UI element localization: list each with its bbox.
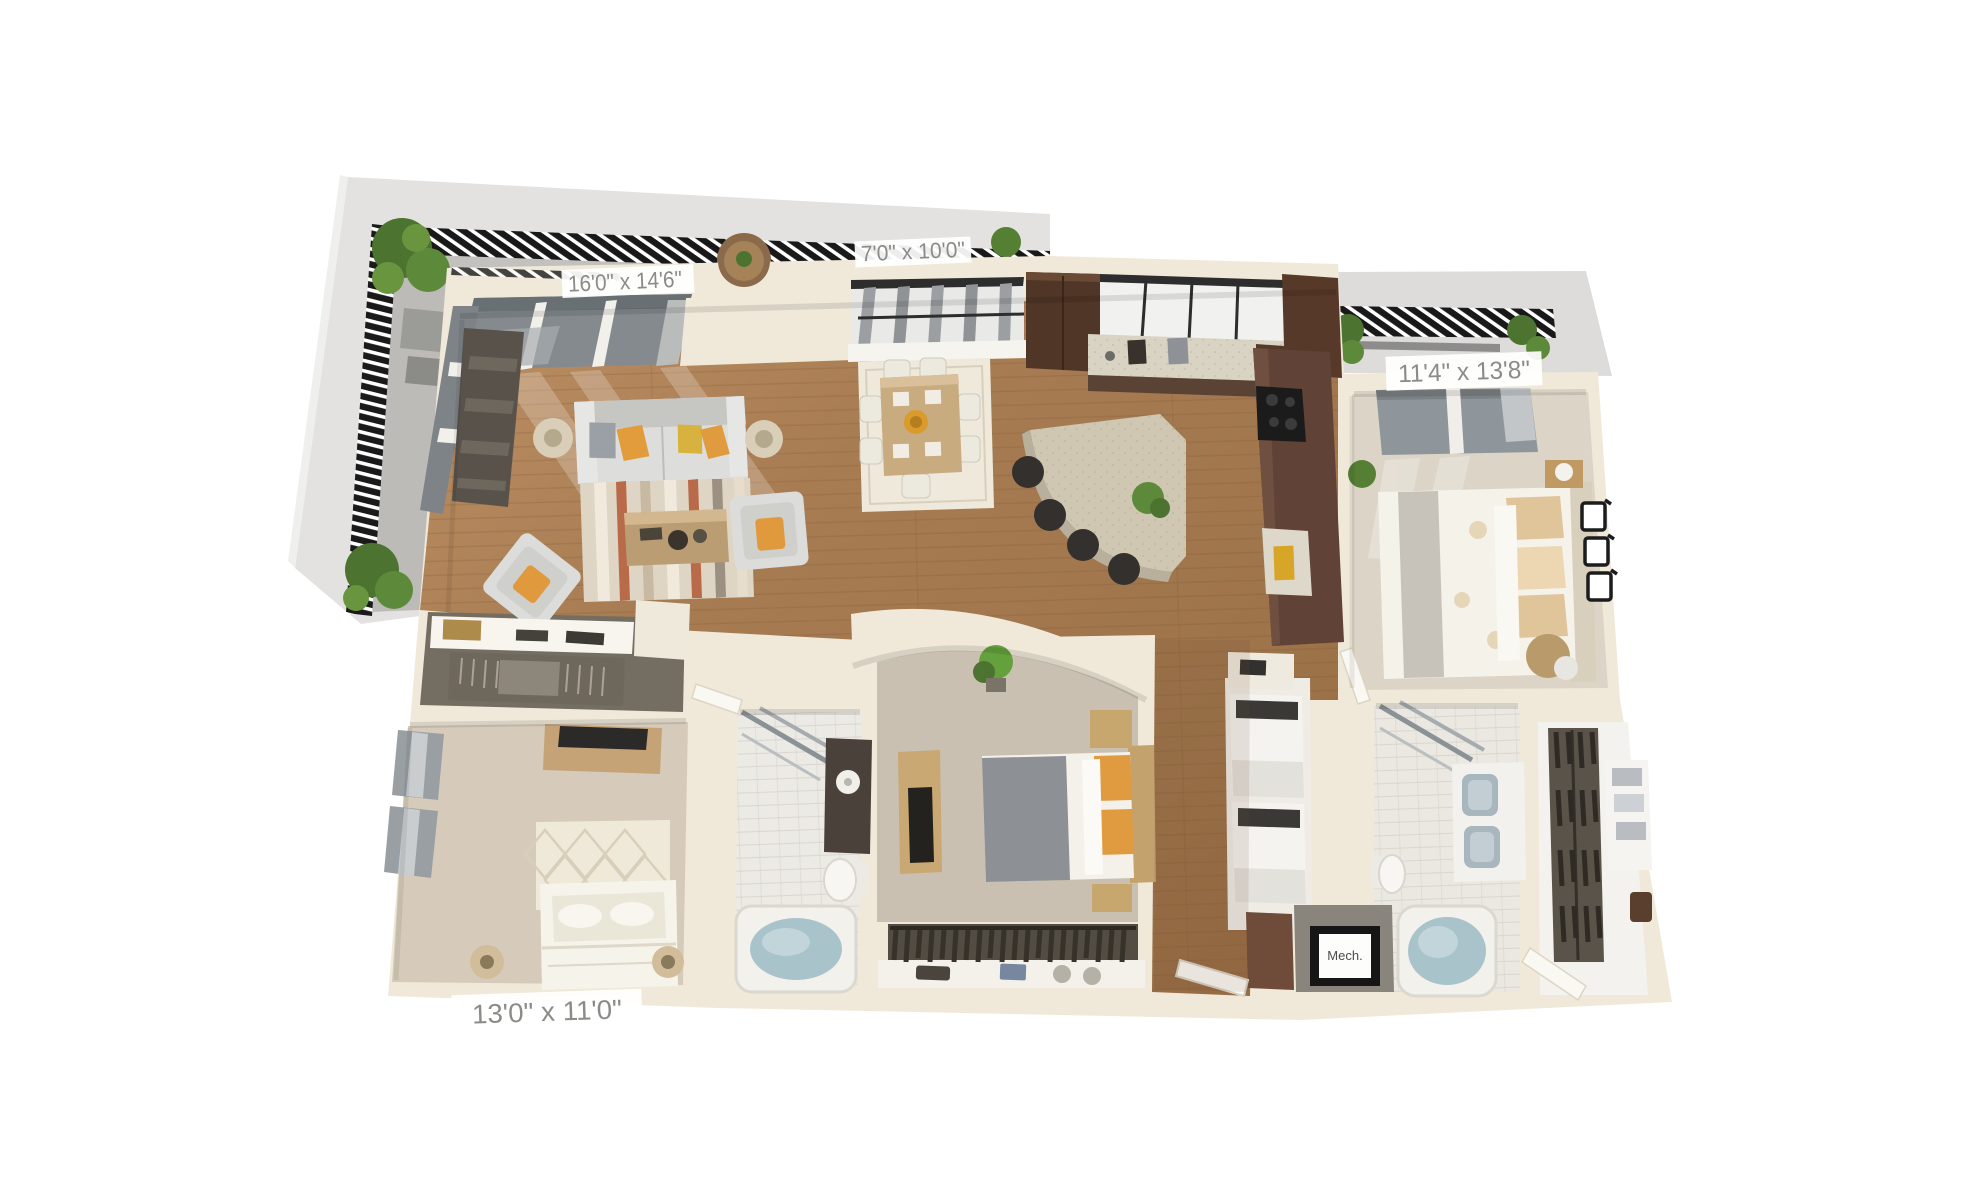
svg-text:11'4" x 13'8": 11'4" x 13'8" bbox=[1398, 356, 1531, 389]
svg-text:13'0" x 11'0": 13'0" x 11'0" bbox=[472, 994, 623, 1029]
svg-text:Mech.: Mech. bbox=[1327, 948, 1362, 963]
svg-text:7'0" x 10'0": 7'0" x 10'0" bbox=[860, 237, 965, 267]
svg-text:16'0" x 14'6": 16'0" x 14'6" bbox=[567, 266, 682, 297]
